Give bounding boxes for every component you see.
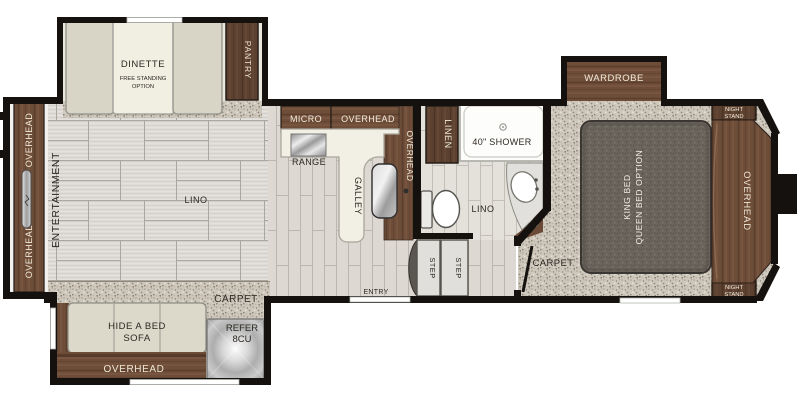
svg-text:FREE STANDING: FREE STANDING: [120, 76, 167, 82]
svg-text:NIGHT: NIGHT: [725, 107, 743, 113]
svg-text:8CU: 8CU: [232, 334, 251, 345]
svg-text:CARPET: CARPET: [214, 294, 258, 305]
svg-text:REFER: REFER: [226, 323, 258, 334]
svg-text:OVERHEAD: OVERHEAD: [24, 113, 34, 168]
svg-text:STAND: STAND: [724, 114, 743, 120]
svg-text:LINO: LINO: [184, 195, 207, 205]
svg-text:WARDROBE: WARDROBE: [584, 73, 644, 84]
svg-text:PANTRY: PANTRY: [243, 41, 253, 80]
svg-text:STEP: STEP: [428, 257, 437, 278]
svg-text:CARPET: CARPET: [533, 258, 574, 269]
svg-text:NIGHT: NIGHT: [725, 285, 743, 291]
svg-text:STEP: STEP: [454, 257, 463, 278]
svg-text:DINETTE: DINETTE: [121, 59, 165, 70]
svg-text:MICRO: MICRO: [290, 114, 322, 124]
svg-text:OVERHEAD: OVERHEAD: [341, 114, 395, 124]
svg-text:OPTION: OPTION: [132, 84, 154, 90]
svg-text:LINEN: LINEN: [443, 119, 453, 149]
svg-text:ENTERTAINMENT: ENTERTAINMENT: [50, 152, 62, 248]
svg-text:LINO: LINO: [471, 204, 494, 214]
svg-text:OVERHEAD: OVERHEAD: [24, 224, 34, 279]
svg-text:40" SHOWER: 40" SHOWER: [472, 137, 531, 147]
svg-text:KING BED: KING BED: [622, 174, 632, 219]
svg-text:OVERHEAD: OVERHEAD: [741, 171, 752, 231]
svg-text:SOFA: SOFA: [123, 333, 151, 344]
svg-text:RANGE: RANGE: [292, 157, 326, 167]
svg-text:HIDE A BED: HIDE A BED: [108, 321, 166, 332]
svg-text:OVERHEAD: OVERHEAD: [104, 364, 165, 375]
svg-text:QUEEN BED OPTION: QUEEN BED OPTION: [634, 150, 644, 245]
svg-text:GALLEY: GALLEY: [353, 177, 363, 215]
svg-text:ENTRY: ENTRY: [363, 289, 388, 296]
